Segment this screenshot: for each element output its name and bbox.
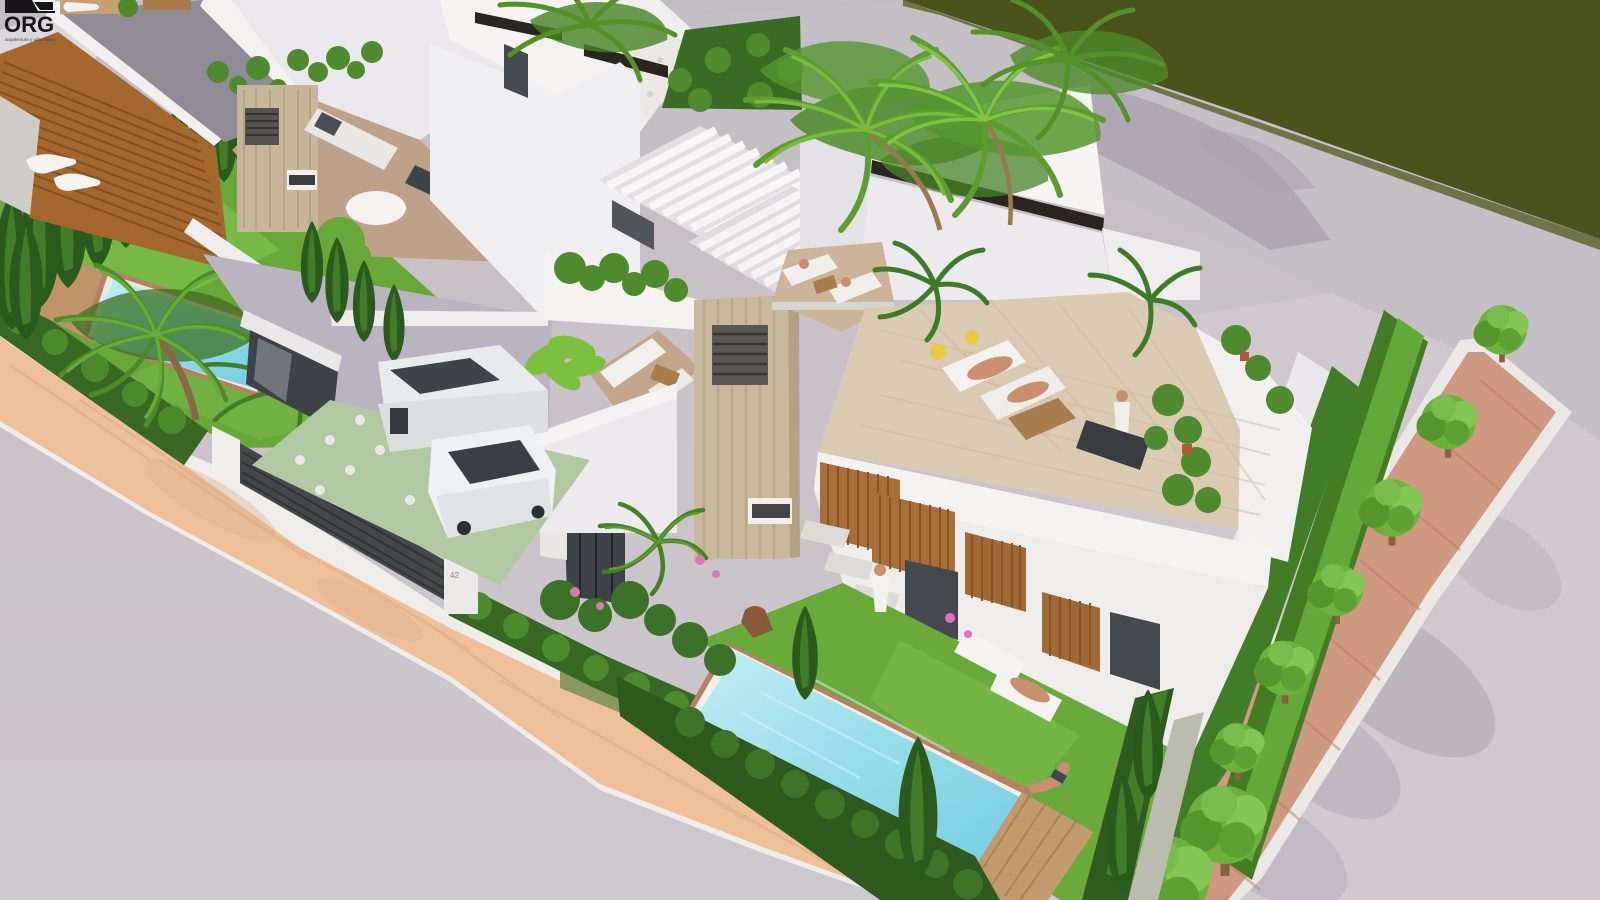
svg-text:42: 42: [450, 571, 459, 580]
svg-text:arquitectura y urbanismo: arquitectura y urbanismo: [5, 37, 55, 42]
svg-text:ORG: ORG: [4, 12, 54, 37]
